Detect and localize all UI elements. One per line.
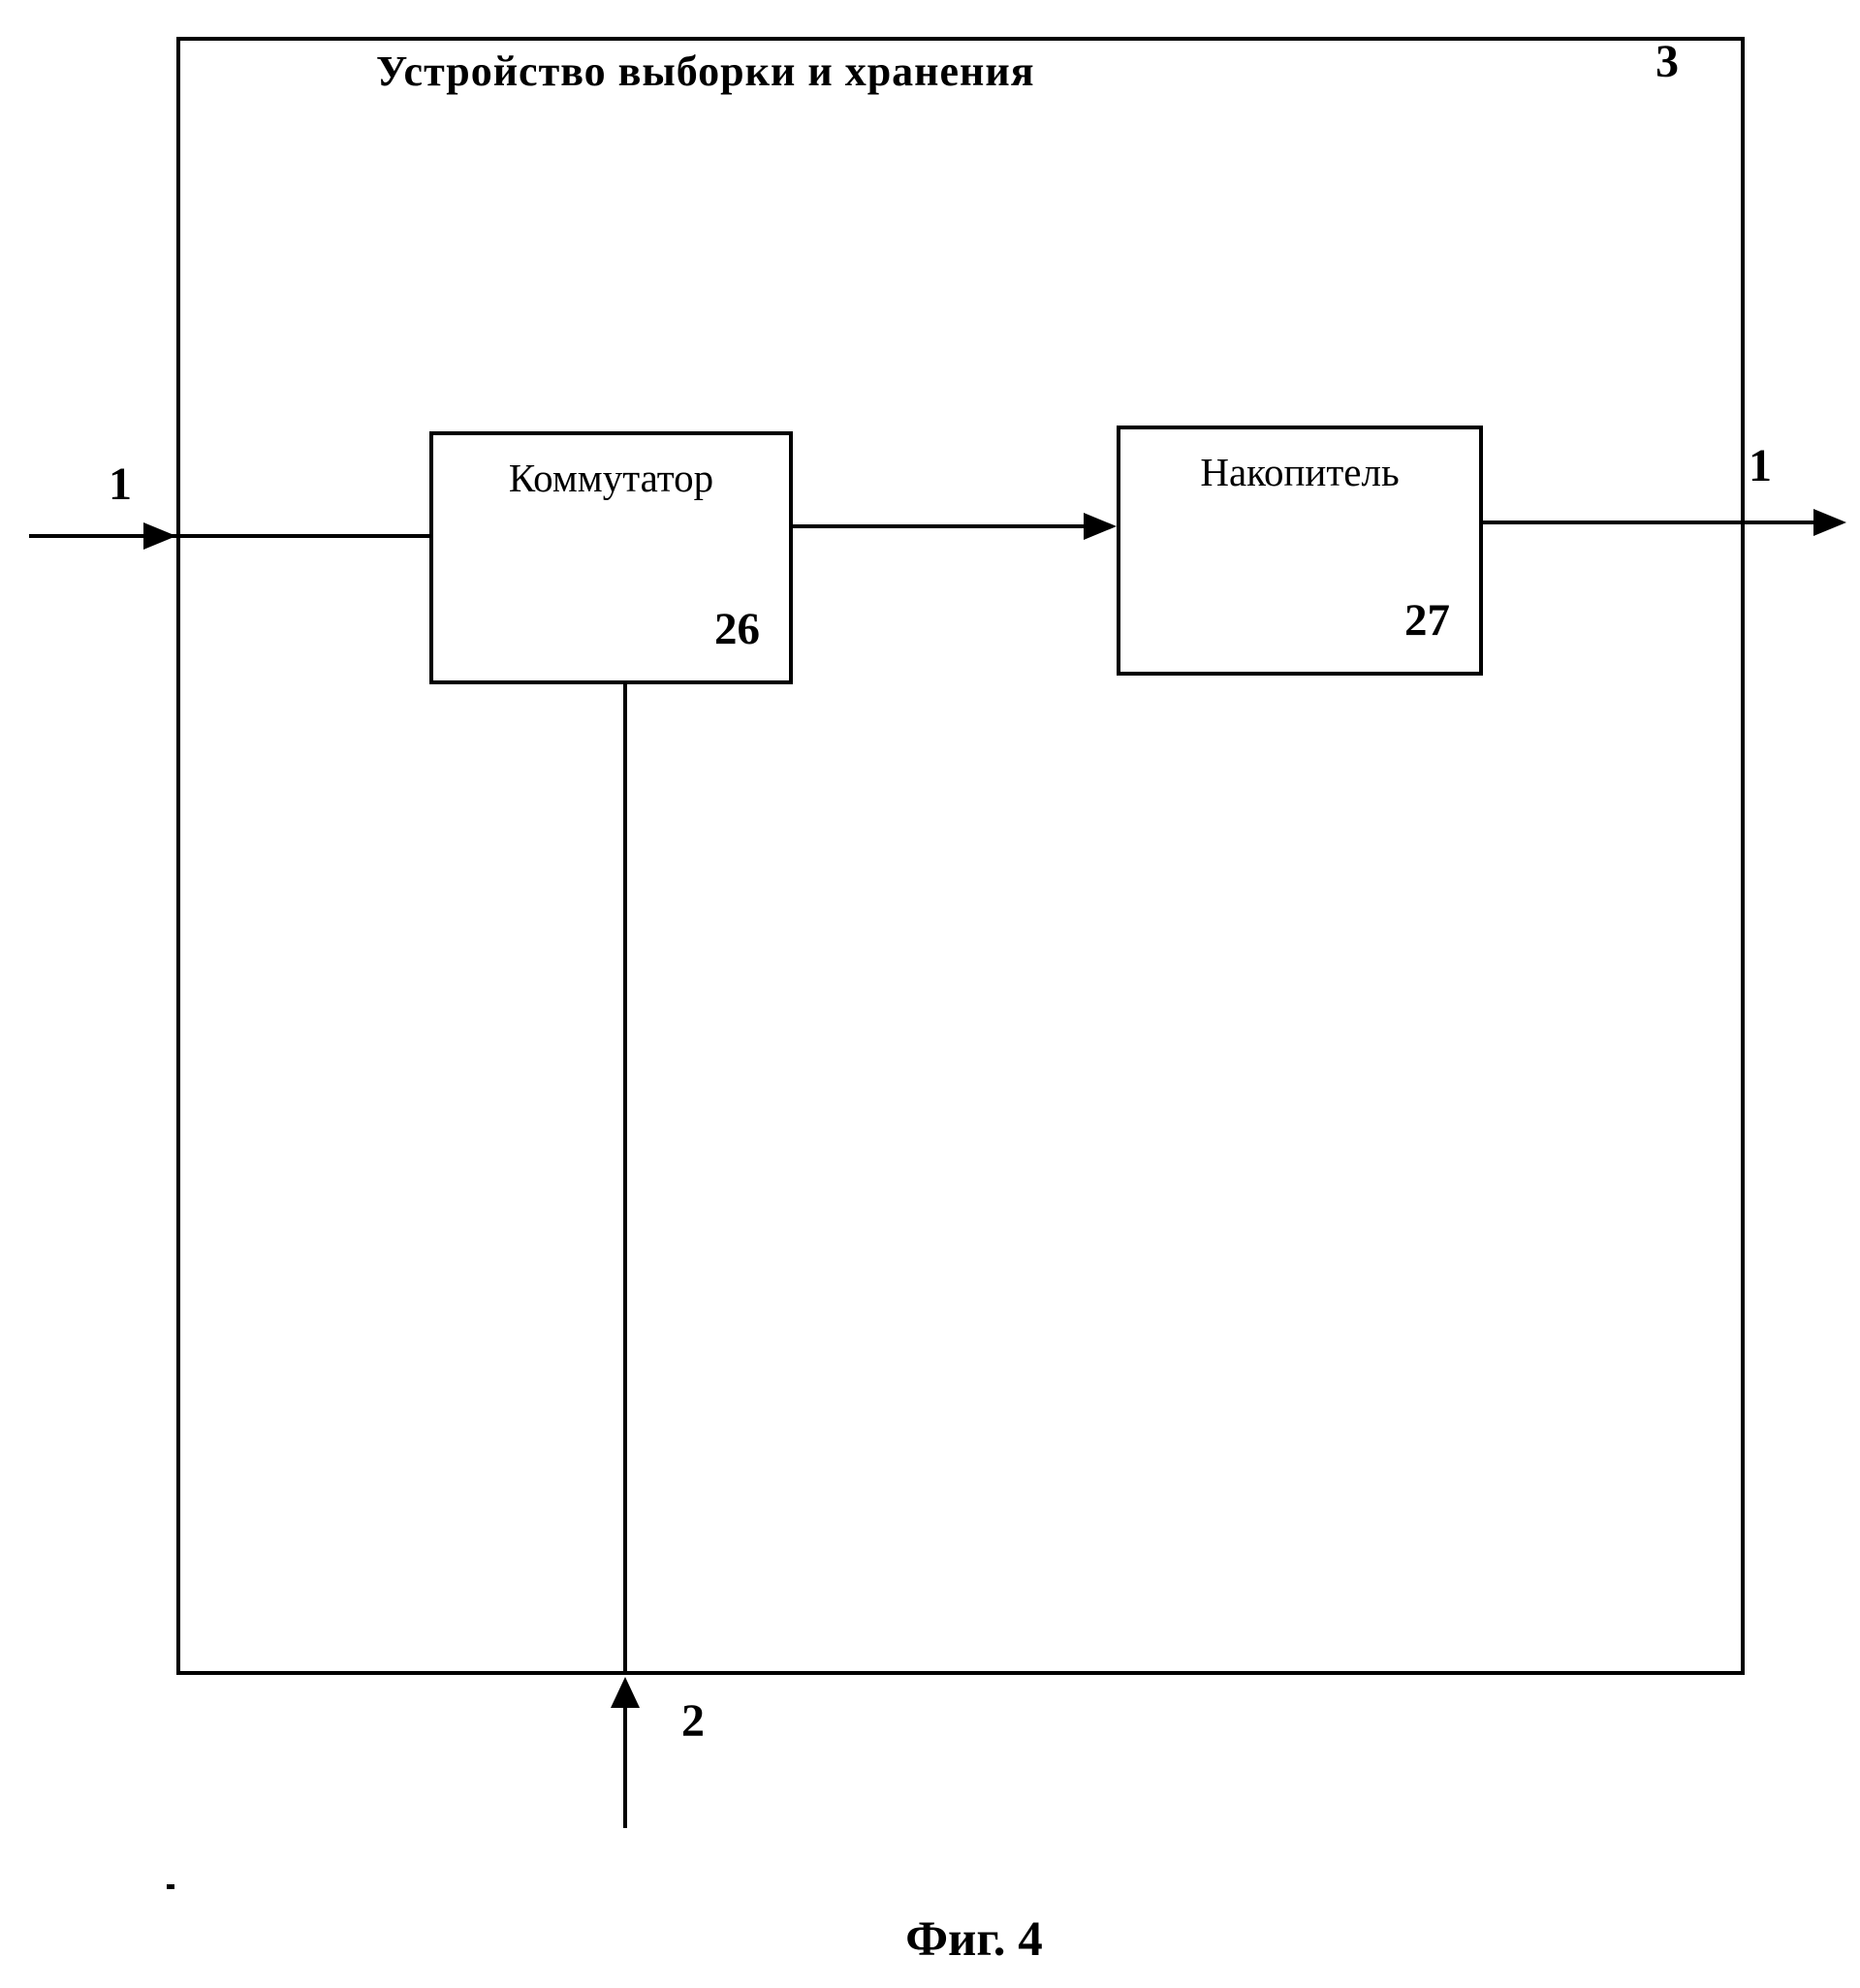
block-kommutator-number: 26 bbox=[714, 603, 760, 655]
control-signal-line-outer bbox=[623, 1706, 627, 1828]
figure-caption: Фиг. 4 bbox=[834, 1911, 1115, 1968]
block-kommutator-label: Коммутатор bbox=[433, 455, 789, 501]
block-kommutator: Коммутатор 26 bbox=[429, 431, 793, 684]
block-nakopitel-number: 27 bbox=[1404, 594, 1450, 647]
block-nakopitel-label: Накопитель bbox=[1120, 449, 1479, 495]
device-number-label: 3 bbox=[1655, 35, 1679, 88]
control-signal-line-inner bbox=[623, 684, 627, 1675]
output-port-label: 1 bbox=[1749, 439, 1772, 492]
block-nakopitel: Накопитель 27 bbox=[1117, 426, 1483, 676]
input-arrowhead-icon bbox=[143, 522, 176, 550]
output-arrowhead-icon bbox=[1813, 509, 1846, 536]
scan-speck bbox=[167, 1884, 174, 1889]
input-signal-line bbox=[29, 534, 429, 538]
control-port-label: 2 bbox=[681, 1694, 705, 1748]
input-port-label: 1 bbox=[109, 458, 132, 511]
intermediate-arrowhead-icon bbox=[1084, 513, 1117, 540]
diagram-title: Устройство выборки и хранения bbox=[376, 47, 1035, 96]
device-boundary-box bbox=[176, 37, 1745, 1675]
output-signal-line bbox=[1483, 521, 1815, 524]
figure-page: Устройство выборки и хранения 3 1 Коммут… bbox=[0, 0, 1860, 1988]
control-arrowhead-icon bbox=[611, 1677, 640, 1708]
intermediate-signal-line bbox=[793, 524, 1086, 528]
